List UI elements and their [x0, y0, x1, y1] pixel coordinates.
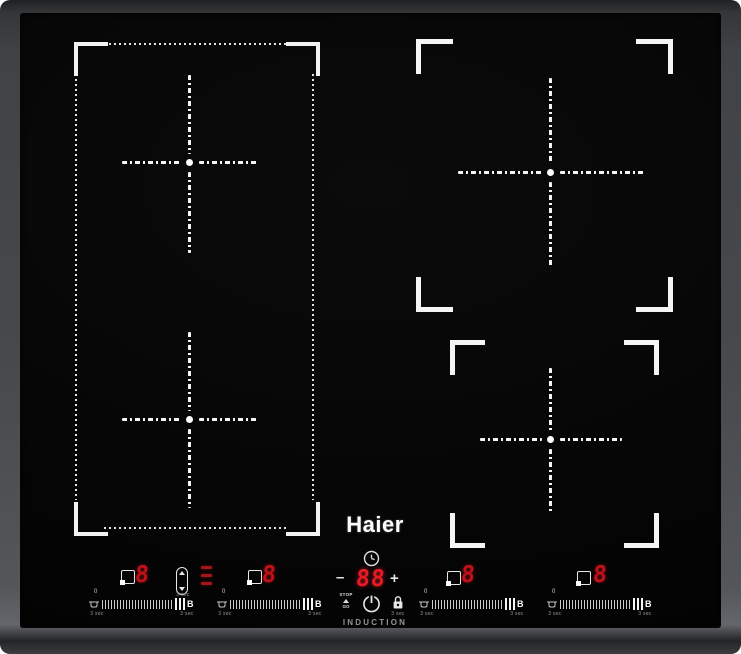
corner-bracket — [286, 502, 320, 536]
slider-boost-ticks[interactable] — [175, 598, 185, 610]
slider-boost-ticks[interactable] — [633, 598, 643, 610]
pan-icon — [418, 599, 430, 609]
slider-hold-hint: 3 sec — [214, 611, 236, 617]
zone-border-dots — [104, 43, 286, 45]
slider-hold-hint: 3 sec — [506, 611, 528, 617]
slider-hold-hint: 3 sec — [416, 611, 438, 617]
zone-border-dots — [104, 527, 286, 529]
power-level-display: 8 — [592, 564, 609, 586]
timer-display: 88 — [355, 568, 387, 590]
boost-label[interactable]: B — [187, 600, 194, 609]
corner-bracket — [416, 277, 453, 312]
lock-button[interactable] — [392, 595, 404, 610]
corner-bracket — [624, 340, 659, 375]
slider-ticks[interactable] — [230, 600, 302, 609]
slider-ticks[interactable] — [102, 600, 174, 609]
slider-hold-hint: 3 sec — [544, 611, 566, 617]
slider-boost-ticks[interactable] — [303, 598, 313, 610]
slider-zero-label: 0 — [552, 589, 555, 595]
slider-ticks[interactable] — [432, 600, 504, 609]
corner-bracket — [74, 502, 108, 536]
corner-bracket — [286, 42, 320, 76]
pan-icon — [546, 599, 558, 609]
power-level-display: 8 — [261, 564, 278, 586]
power-level-display: 8 — [460, 564, 477, 586]
power-slider[interactable]: 0 B 3 sec 3 sec — [544, 590, 656, 616]
timer-plus-button[interactable]: + — [390, 570, 399, 587]
clock-icon — [363, 550, 380, 567]
boost-label[interactable]: B — [517, 600, 524, 609]
induction-hob: Haier 8 3 sec 8 – 88 + STOP GO — [0, 0, 741, 654]
boost-label[interactable]: B — [315, 600, 322, 609]
zone-border-dots — [312, 74, 314, 500]
slider-hold-hint: 3 sec — [634, 611, 656, 617]
zone-select-icon[interactable] — [121, 570, 135, 584]
lock-icon — [392, 595, 404, 610]
power-slider[interactable]: 0 B 3 sec 3 sec — [214, 590, 326, 616]
corner-bracket — [416, 39, 453, 74]
zone-select-icon[interactable] — [447, 571, 461, 585]
slider-zero-label: 0 — [222, 589, 225, 595]
corner-bracket — [624, 513, 659, 548]
slider-zero-label: 0 — [424, 589, 427, 595]
slider-boost-ticks[interactable] — [505, 598, 515, 610]
zone-select-icon[interactable] — [577, 571, 591, 585]
lock-hold-hint: 3 sec — [387, 611, 409, 617]
zone-select-icon[interactable] — [248, 570, 262, 584]
induction-label: INDUCTION — [330, 618, 420, 627]
timer-minus-button[interactable]: – — [336, 569, 344, 586]
corner-bracket — [636, 277, 673, 312]
corner-bracket — [636, 39, 673, 74]
corner-bracket — [450, 340, 485, 375]
power-slider[interactable]: 0 B 3 sec 3 sec — [416, 590, 528, 616]
power-slider[interactable]: 0 B 3 sec 3 sec — [86, 590, 198, 616]
slider-hold-hint: 3 sec — [86, 611, 108, 617]
boost-label[interactable]: B — [645, 600, 652, 609]
pan-icon — [216, 599, 228, 609]
flex-indicator-icon — [201, 566, 213, 590]
slider-ticks[interactable] — [560, 600, 632, 609]
power-icon — [361, 593, 382, 614]
slider-hold-hint: 3 sec — [176, 611, 198, 617]
corner-bracket — [450, 513, 485, 548]
power-level-display: 8 — [134, 564, 151, 586]
pan-icon — [88, 599, 100, 609]
slider-zero-label: 0 — [94, 589, 97, 595]
brand-logo: Haier — [340, 512, 410, 538]
slider-hold-hint: 3 sec — [304, 611, 326, 617]
zone-border-dots — [75, 74, 77, 500]
timer-clock-button[interactable] — [363, 550, 380, 567]
power-button[interactable] — [361, 593, 382, 614]
stop-go-triangle-icon — [343, 599, 349, 603]
stop-go-button[interactable]: STOP GO — [335, 592, 357, 609]
corner-bracket — [74, 42, 108, 76]
